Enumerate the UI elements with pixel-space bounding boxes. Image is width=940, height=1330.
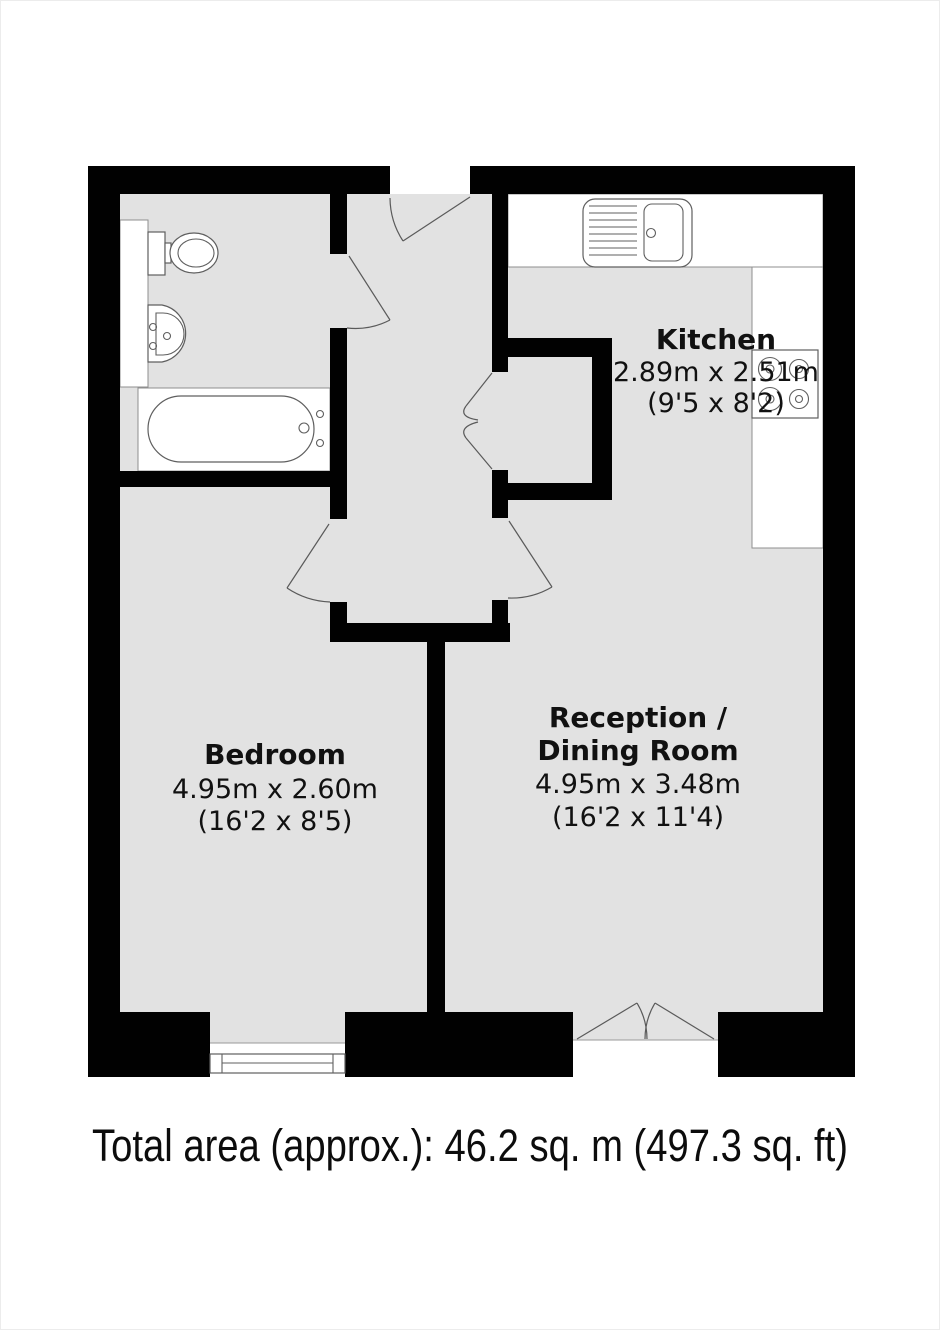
bedroom-window: [210, 1043, 345, 1073]
toilet-icon: [148, 232, 218, 275]
wall-bathroom-right-upper: [330, 194, 347, 254]
wall-cupboard-bottom: [508, 483, 612, 500]
reception-label-line1: Reception /: [549, 701, 728, 734]
wall-bottom-right: [718, 1012, 855, 1077]
wall-right: [823, 166, 855, 1077]
wall-top-left: [88, 166, 390, 194]
kitchen-sink-icon: [583, 199, 692, 267]
floorplan-page: Kitchen 2.89m x 2.51m (9'5 x 8'2) Bedroo…: [0, 0, 940, 1330]
wall-top-right: [470, 166, 855, 194]
bedroom-imperial: (16'2 x 8'5): [198, 806, 353, 837]
bathtub-icon: [148, 396, 324, 462]
bedroom-metric: 4.95m x 2.60m: [172, 774, 378, 805]
wall-hallway-bottom: [330, 623, 510, 642]
wall-kitchen-left-upper: [492, 194, 508, 372]
total-area-text: Total area (approx.): 46.2 sq. m (497.3 …: [92, 1120, 848, 1171]
kitchen-imperial: (9'5 x 8'2): [647, 388, 785, 419]
floor-main: [120, 194, 823, 1012]
wall-bottom-left: [88, 1012, 210, 1077]
kitchen-metric: 2.89m x 2.51m: [613, 357, 819, 388]
kitchen-label: Kitchen: [656, 323, 776, 356]
bedroom-label: Bedroom: [204, 738, 346, 771]
reception-label-line2: Dining Room: [537, 734, 738, 767]
wall-bedroom-reception-divider: [427, 623, 445, 1012]
floor-window-bay: [210, 1012, 345, 1043]
vanity-counter: [120, 220, 148, 387]
wall-cupboard-right: [592, 338, 612, 500]
wall-left: [88, 166, 120, 1077]
wall-bottom-middle: [345, 1012, 573, 1077]
floor-area: [120, 194, 823, 1043]
reception-metric: 4.95m x 3.48m: [535, 769, 741, 800]
wall-kitchen-left-mid: [492, 470, 508, 518]
wall-bathroom-right-lower: [330, 328, 347, 519]
reception-imperial: (16'2 x 11'4): [552, 802, 724, 833]
floorplan-canvas: Kitchen 2.89m x 2.51m (9'5 x 8'2) Bedroo…: [0, 0, 940, 1330]
wall-bathroom-bedroom: [120, 471, 347, 487]
wall-kitchen-left-lower: [492, 600, 508, 642]
